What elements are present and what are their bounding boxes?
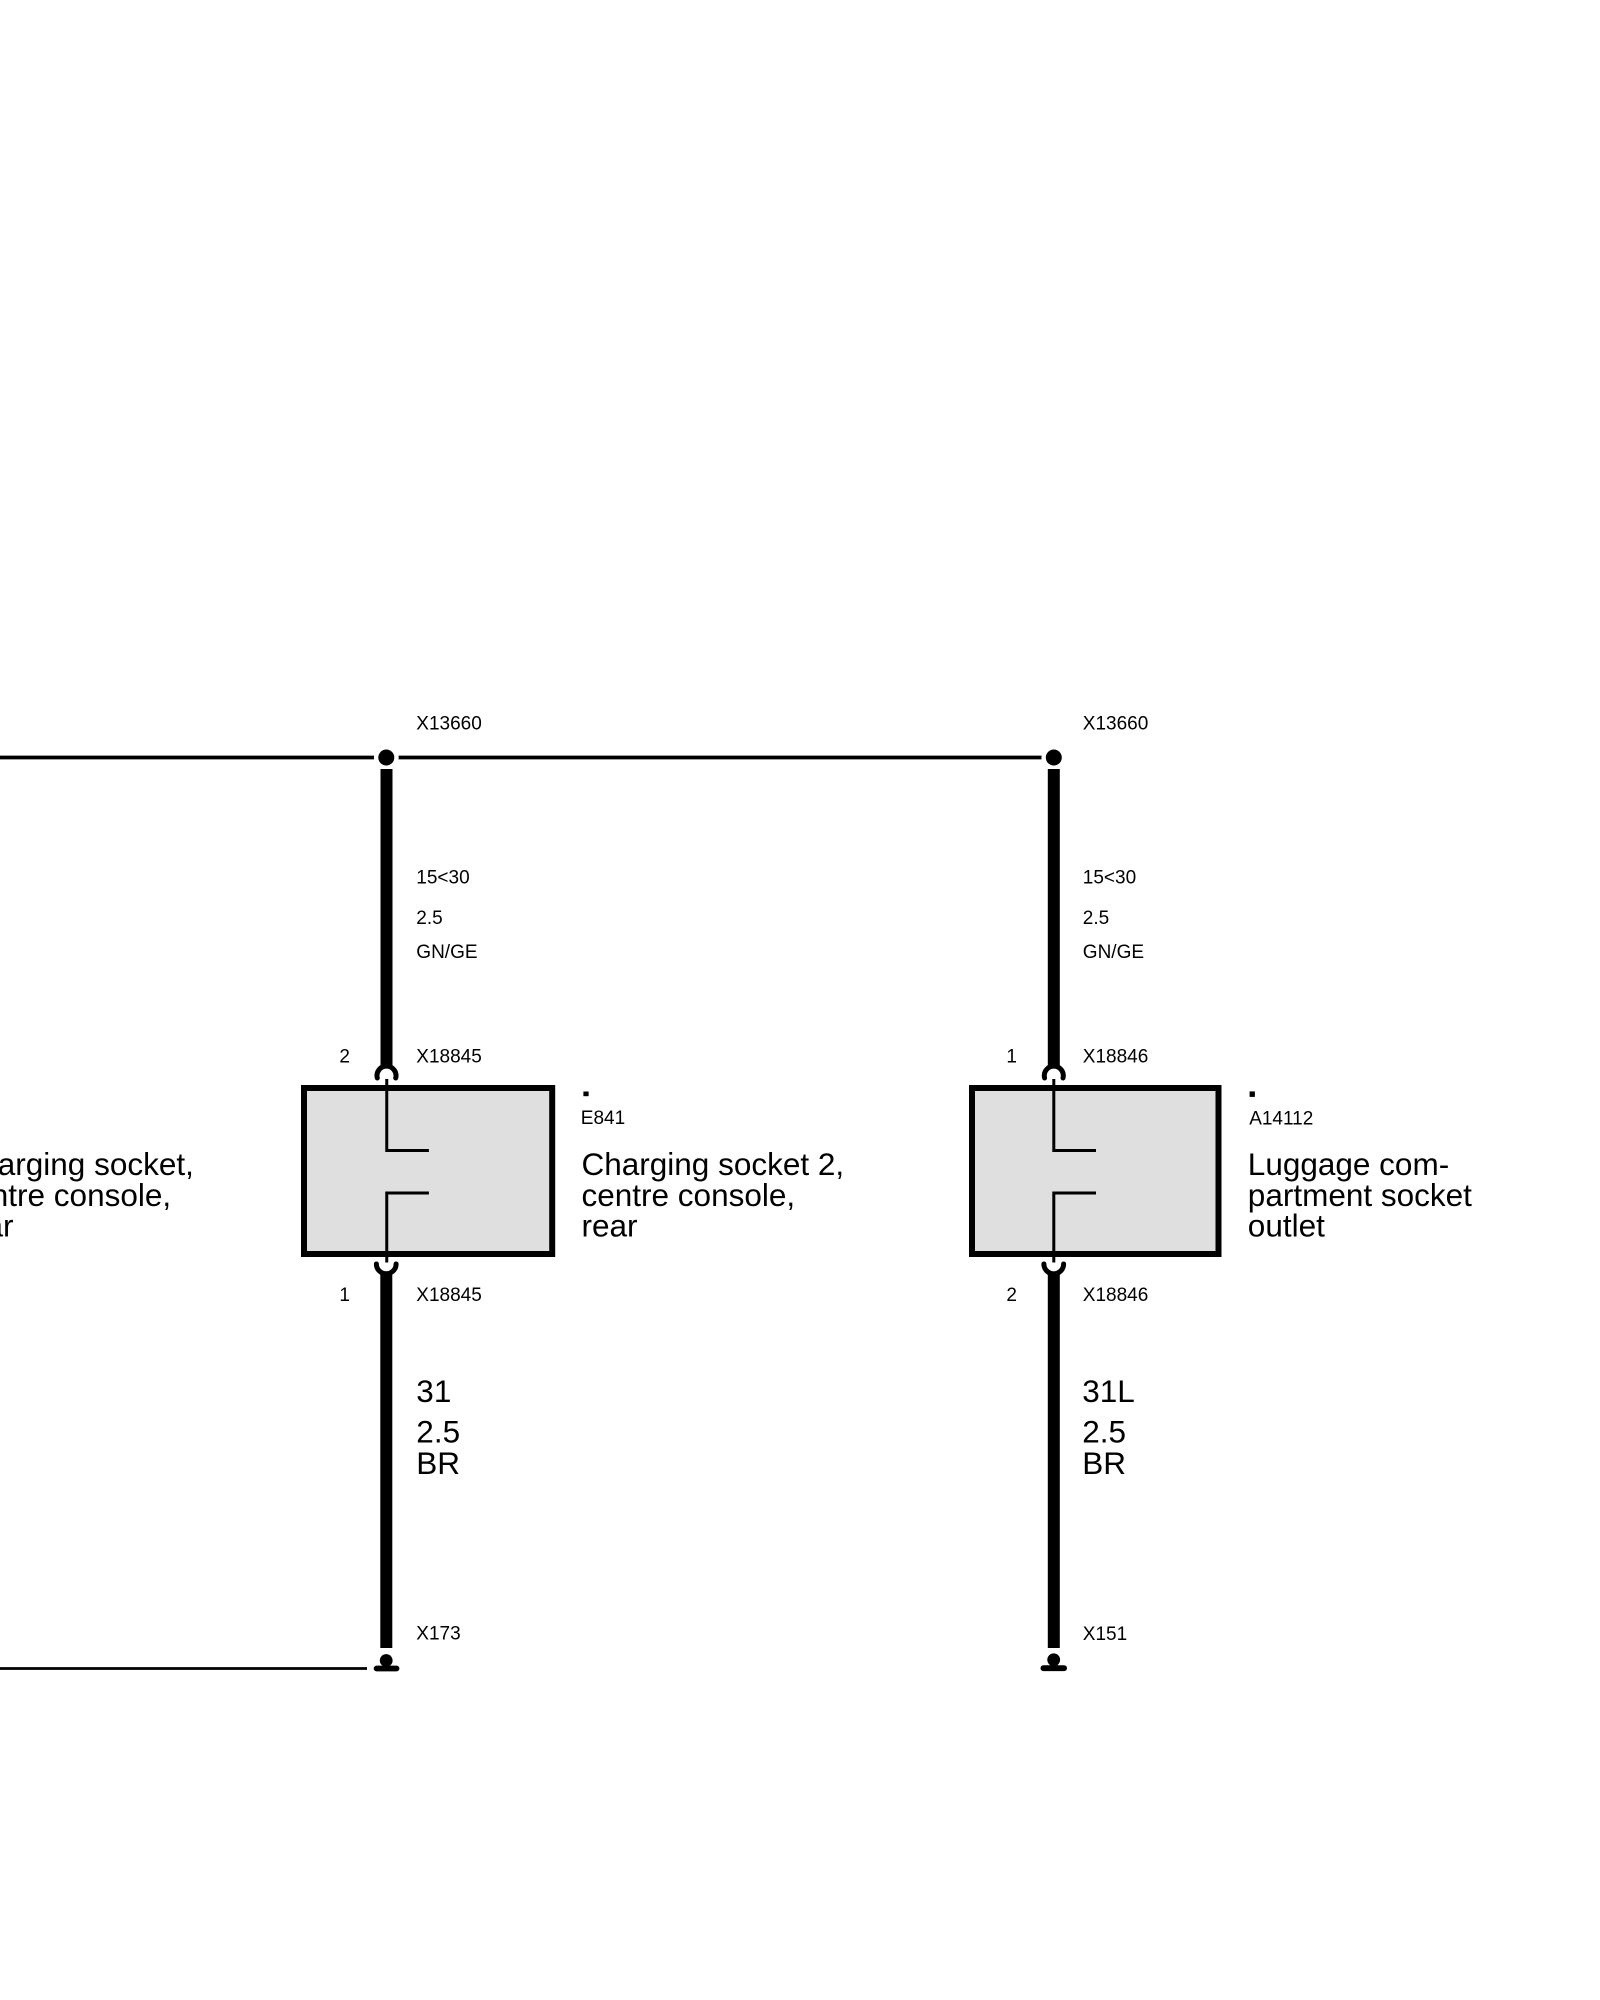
svg-text:X13660: X13660 — [1083, 714, 1149, 735]
svg-text:2: 2 — [339, 1047, 350, 1068]
svg-text:2.5: 2.5 — [1083, 908, 1109, 929]
svg-text:1: 1 — [1006, 1047, 1017, 1068]
svg-text:rear: rear — [0, 1208, 14, 1244]
svg-text:15<30: 15<30 — [416, 867, 469, 888]
svg-text:X173: X173 — [416, 1624, 460, 1645]
svg-text:A14112: A14112 — [1249, 1109, 1313, 1130]
svg-text:BR: BR — [1082, 1445, 1126, 1481]
svg-text:2.5: 2.5 — [416, 908, 442, 929]
svg-text:31L: 31L — [1082, 1373, 1135, 1409]
svg-text:GN/GE: GN/GE — [1083, 942, 1144, 963]
svg-text:outlet: outlet — [1248, 1208, 1325, 1244]
svg-text:X13660: X13660 — [416, 714, 482, 735]
svg-text:X18845: X18845 — [416, 1285, 482, 1306]
svg-text:1: 1 — [339, 1285, 350, 1306]
svg-text:centre console,: centre console, — [0, 1177, 171, 1213]
svg-text:15<30: 15<30 — [1083, 867, 1136, 888]
svg-text:E841: E841 — [581, 1108, 625, 1129]
svg-text:GN/GE: GN/GE — [416, 942, 477, 963]
svg-text:BR: BR — [416, 1445, 460, 1481]
svg-text:X18845: X18845 — [416, 1047, 482, 1068]
svg-text:rear: rear — [582, 1208, 638, 1244]
svg-text:X151: X151 — [1083, 1624, 1127, 1645]
svg-text:X18846: X18846 — [1083, 1047, 1149, 1068]
svg-text:X18846: X18846 — [1083, 1285, 1149, 1306]
svg-text:2: 2 — [1006, 1285, 1017, 1306]
svg-text:31: 31 — [416, 1373, 451, 1409]
